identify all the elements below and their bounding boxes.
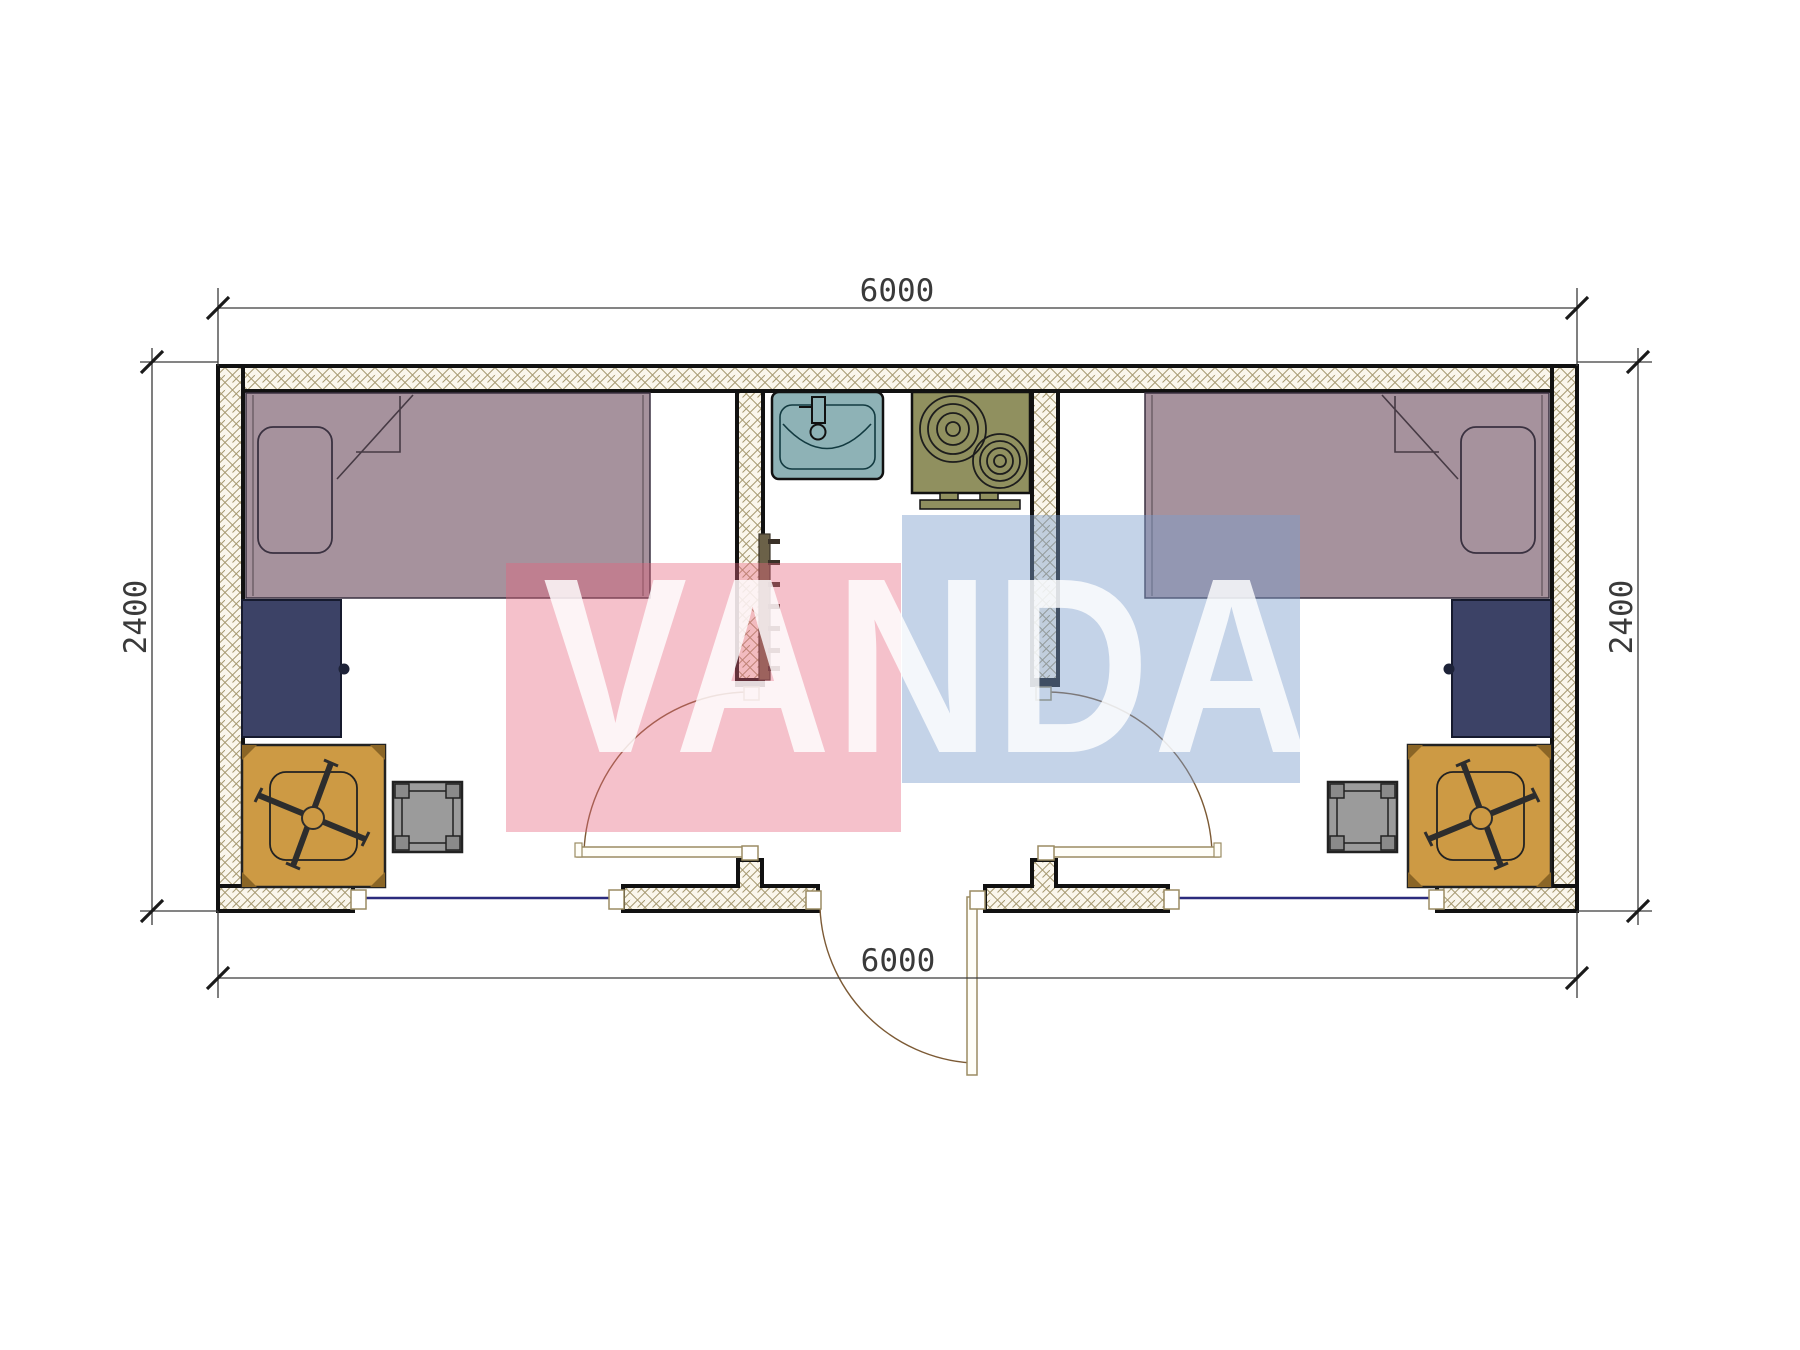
wall-left (218, 366, 243, 911)
desk-right (1444, 600, 1552, 737)
dimension-left-label: 2400 (118, 580, 154, 655)
entrance-door-frame-right (970, 891, 985, 909)
door-right-leaf (1048, 847, 1219, 857)
window-right-frame-b (1429, 890, 1444, 909)
faucet-icon (812, 397, 825, 423)
chair-hub-left (302, 807, 324, 829)
wall-bottom-left-tee (623, 860, 818, 911)
wall-bottom-right (1437, 886, 1577, 911)
cooktop-control-bar (920, 500, 1020, 509)
entrance-door-frame-left (806, 891, 821, 909)
faucet-knob-icon (811, 425, 826, 440)
wall-top (218, 366, 1577, 391)
watermark-text: VANDA (543, 526, 1313, 805)
sink (772, 392, 883, 479)
desk-right-knob (1444, 664, 1455, 675)
door-right-frame-bottom (1038, 846, 1054, 860)
windows (351, 890, 1444, 909)
dimension-bottom-label: 6000 (861, 943, 936, 979)
table-left (242, 745, 385, 887)
stool-left (393, 782, 462, 852)
floor-plan-drawing: 6000 6000 2400 2400 VANDA (0, 0, 1800, 1350)
window-left-frame-a (351, 890, 366, 909)
door-left-leaf (577, 847, 748, 857)
dimension-top-label: 6000 (860, 273, 935, 309)
cooktop-tab-a (940, 493, 958, 500)
entrance-door (806, 891, 985, 1075)
wall-right (1552, 366, 1577, 911)
door-left-frame-bottom (742, 846, 758, 860)
door-left-leaf-tip (575, 843, 582, 857)
window-left-frame-b (609, 890, 624, 909)
window-right-frame-a (1164, 890, 1179, 909)
wall-bottom-right-tee (985, 860, 1168, 911)
dimension-right-label: 2400 (1604, 580, 1640, 655)
wall-bottom-left (218, 886, 353, 911)
door-right-leaf-tip (1214, 843, 1221, 857)
floor-plan-page: 6000 6000 2400 2400 VANDA (0, 0, 1800, 1350)
stool-right (1328, 782, 1397, 852)
cooktop-tab-b (980, 493, 998, 500)
desk-left-knob (339, 664, 350, 675)
table-right (1408, 745, 1551, 887)
entrance-door-arc (820, 908, 971, 1063)
entrance-door-leaf (967, 897, 977, 1075)
chair-hub-right (1470, 807, 1492, 829)
cooktop (912, 392, 1030, 509)
desk-left (242, 600, 350, 737)
